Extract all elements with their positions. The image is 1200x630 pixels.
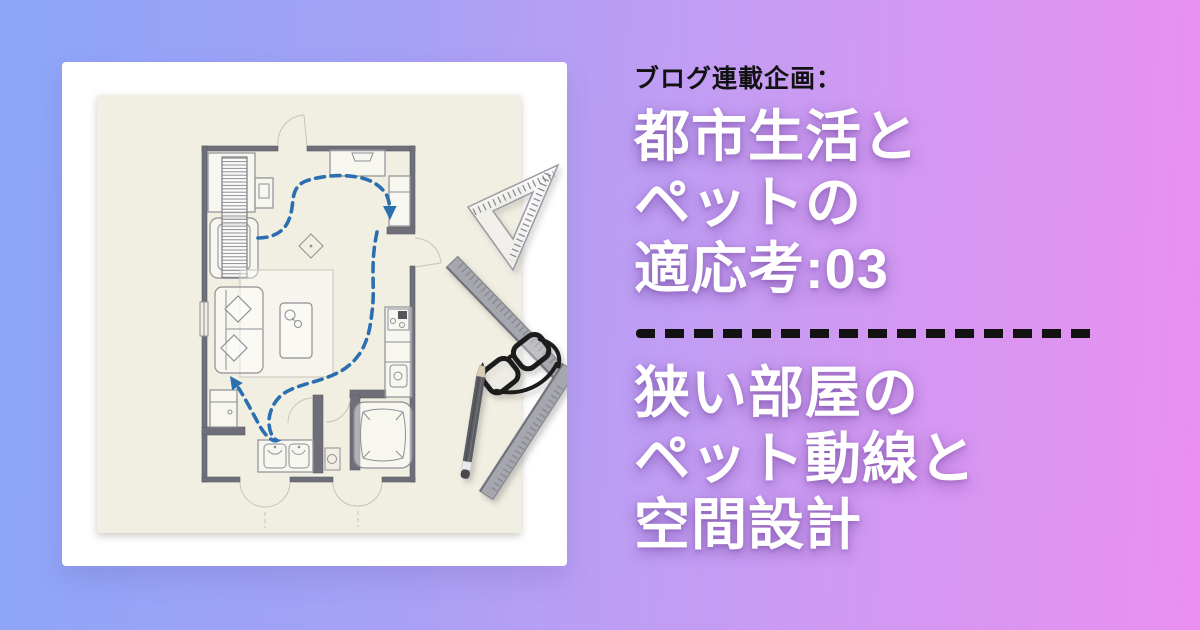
episode-title: 狭い部屋の ペット動線と 空間設計	[634, 360, 1174, 558]
series-title: 都市生活と ペットの 適応考:03	[634, 104, 1174, 302]
kicker-label: ブログ連載企画：	[634, 64, 1174, 94]
floor-plan-illustration	[62, 62, 567, 566]
dashed-divider	[636, 329, 1100, 338]
text-column: ブログ連載企画： 都市生活と ペットの 適応考:03 狭い部屋の ペット動線と …	[634, 64, 1174, 558]
episode-title-line-3: 空間設計	[634, 492, 1174, 558]
episode-title-line-2: ペット動線と	[634, 426, 1174, 492]
series-title-line-3: 適応考:03	[634, 236, 1174, 302]
series-title-line-2: ペットの	[634, 170, 1174, 236]
banner: { "css_vars": { "bg-from": "#8ca6f8", "b…	[0, 0, 1200, 630]
series-title-line-1: 都市生活と	[634, 104, 1174, 170]
floor-plan-photo	[62, 62, 567, 566]
episode-title-line-1: 狭い部屋の	[634, 360, 1174, 426]
